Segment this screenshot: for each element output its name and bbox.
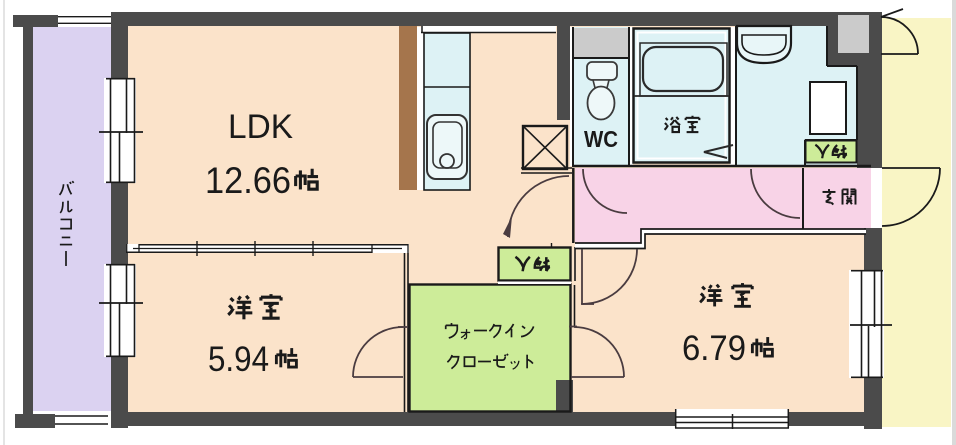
svg-text:WC: WC <box>584 126 618 152</box>
svg-text:12.66: 12.66 <box>205 160 291 201</box>
svg-text:5.94: 5.94 <box>208 340 269 379</box>
svg-text:6.79: 6.79 <box>682 329 746 368</box>
svg-text:LDK: LDK <box>228 108 293 146</box>
